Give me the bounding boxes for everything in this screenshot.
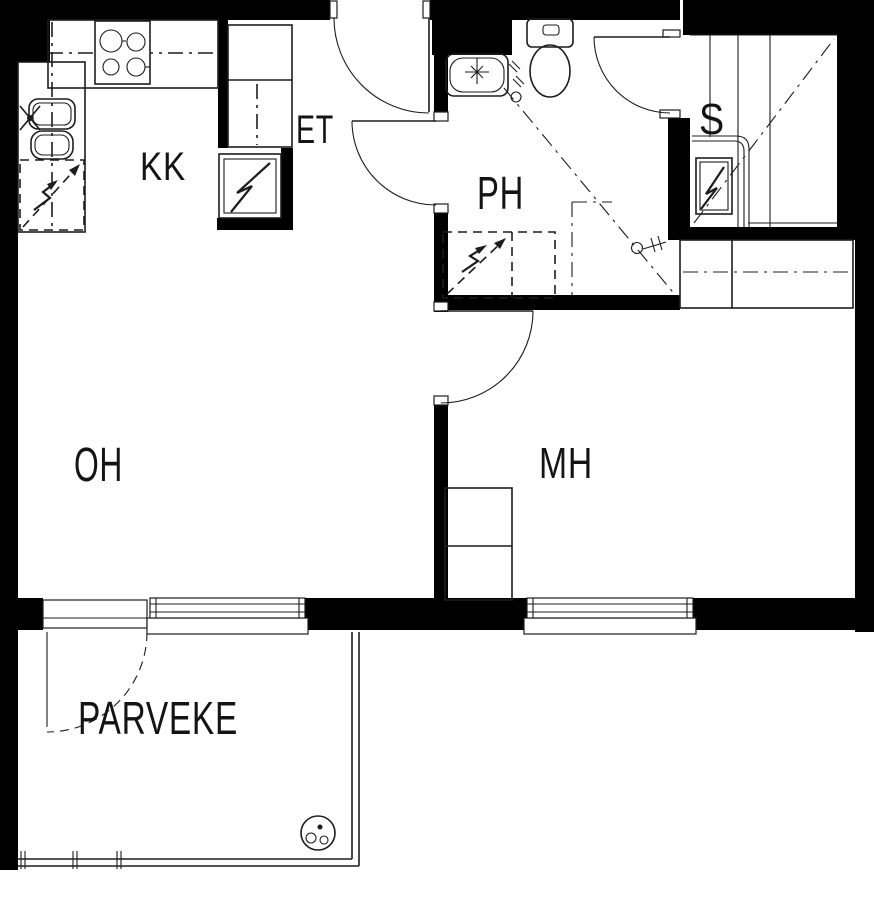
wall-fridge-bottom <box>217 218 293 230</box>
refrigerator-icon <box>219 154 281 218</box>
shower-valve-icon <box>509 61 524 102</box>
wall-kk-et <box>218 18 228 148</box>
washing-machine-reservation-icon <box>443 232 555 298</box>
wall-oh-mh <box>434 403 448 598</box>
toilet-icon <box>527 19 573 97</box>
wall-sauna-bottom <box>683 227 855 240</box>
bedroom-window-icon <box>524 598 696 634</box>
front-door-swing-icon <box>330 1 430 113</box>
wall-oh-bottom-left <box>0 598 43 630</box>
wall-right-lower <box>855 237 874 632</box>
bedroom-door-swing-icon <box>434 302 533 405</box>
floor-slope-lines <box>504 88 676 296</box>
entry-fixtures <box>219 25 292 218</box>
room-label-mh: MH <box>539 439 593 488</box>
living-room-window-icon <box>147 598 308 634</box>
wall-ph-sauna <box>668 118 690 240</box>
coat-closet-icon <box>228 25 292 147</box>
kitchen-sink-icon <box>20 99 75 159</box>
wardrobe-icon <box>445 488 512 600</box>
washbasin-icon <box>446 54 508 96</box>
floor-plan-drawing: KK ET PH S OH MH PARVEKE <box>0 0 874 898</box>
wardrobe-row-icon <box>680 240 853 308</box>
bedroom-fixtures <box>445 240 853 600</box>
sauna-door-swing-icon <box>594 30 680 118</box>
room-label-s: S <box>699 95 725 144</box>
room-labels: KK ET PH S OH MH PARVEKE <box>74 95 725 744</box>
room-label-oh: OH <box>74 439 123 492</box>
balcony-door-panel <box>43 600 147 628</box>
floor-plan: KK ET PH S OH MH PARVEKE <box>0 0 874 898</box>
wall-oh-bottom-right <box>305 598 435 630</box>
wall-mh-bottom-left <box>435 598 527 630</box>
wall-mh-bottom-right <box>693 598 855 630</box>
room-label-parveke: PARVEKE <box>78 692 238 744</box>
wall-fridge-right <box>281 148 293 230</box>
kitchen-fixtures <box>18 20 218 232</box>
balcony-drain-icon <box>301 816 335 850</box>
balcony <box>18 632 359 869</box>
room-label-kk: KK <box>140 145 186 189</box>
sauna-stove-icon <box>692 136 749 227</box>
room-label-et: ET <box>296 108 334 152</box>
wall-left <box>0 0 18 870</box>
stove-icon <box>95 21 150 84</box>
floor-drain-icon <box>632 236 667 254</box>
wall-right-upper <box>837 0 874 237</box>
wall-top-right-of-door <box>430 0 680 20</box>
bathroom-door-swing-icon <box>352 112 448 213</box>
room-label-ph: PH <box>477 167 524 219</box>
bathroom-fixtures <box>443 19 676 298</box>
